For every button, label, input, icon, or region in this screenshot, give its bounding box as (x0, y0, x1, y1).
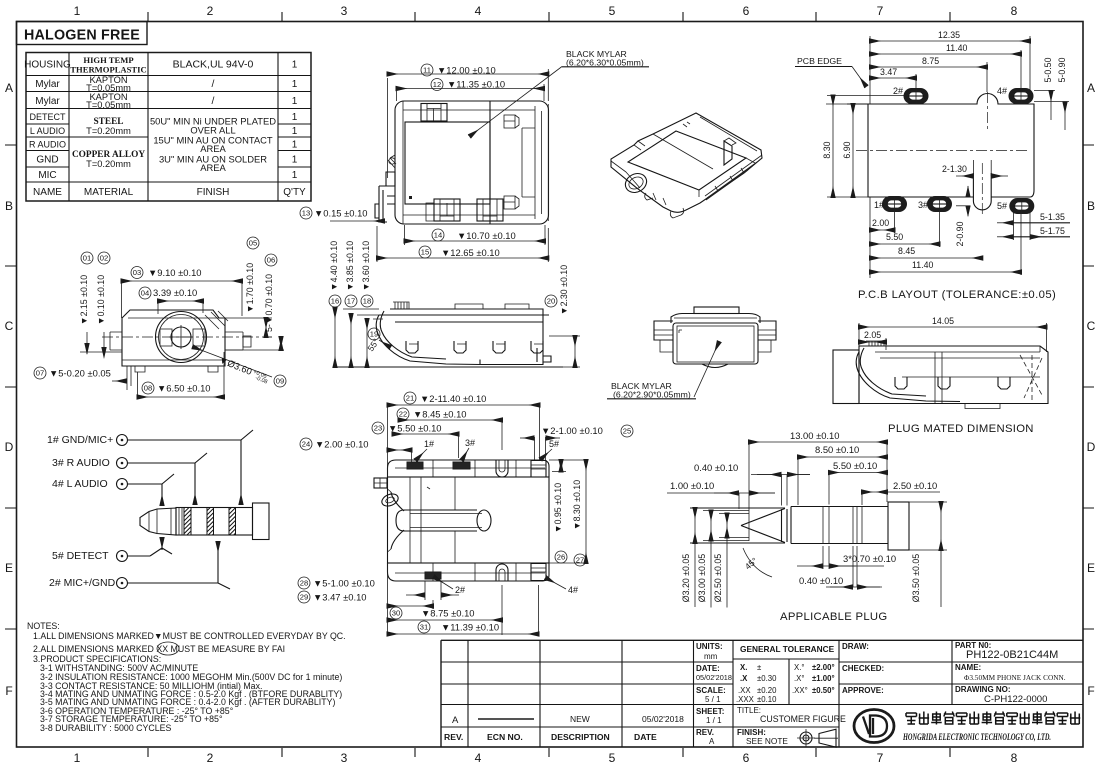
svg-text:5-0.90: 5-0.90 (1057, 57, 1067, 82)
svg-text:5 / 1: 5 / 1 (705, 695, 721, 704)
svg-text:28: 28 (300, 579, 308, 588)
svg-text:C: C (5, 319, 14, 333)
svg-text:▼8.45 ±0.10: ▼8.45 ±0.10 (413, 409, 467, 420)
svg-text:SHEET:: SHEET: (696, 707, 724, 716)
svg-text:NAME:: NAME: (955, 663, 981, 672)
svg-text:Ø3.20 ±0.05: Ø3.20 ±0.05 (681, 554, 691, 602)
svg-text:R AUDIO: R AUDIO (29, 140, 66, 150)
svg-text:SCALE:: SCALE: (696, 686, 726, 695)
svg-text:13: 13 (302, 209, 310, 218)
svg-text:2: 2 (207, 4, 214, 18)
svg-text:4: 4 (475, 751, 482, 765)
svg-text:3#: 3# (918, 200, 928, 210)
svg-text:NEW: NEW (570, 714, 590, 724)
svg-text:/: / (212, 95, 215, 107)
svg-text:24: 24 (302, 440, 310, 449)
svg-text:±0.50°: ±0.50° (812, 686, 835, 695)
svg-text:DESCRIPTION: DESCRIPTION (551, 732, 610, 742)
svg-text:3#: 3# (465, 438, 475, 448)
svg-text:B: B (1087, 199, 1095, 213)
svg-text:11.40: 11.40 (912, 260, 933, 270)
svg-text:FINISH: FINISH (197, 187, 230, 198)
svg-text:▼4.40 ±0.10: ▼4.40 ±0.10 (329, 241, 339, 291)
svg-text:UNITS:: UNITS: (696, 642, 723, 651)
svg-text:2.05: 2.05 (864, 330, 881, 340)
svg-text:5#: 5# (549, 439, 559, 449)
svg-text:8: 8 (1011, 751, 1018, 765)
svg-text:NOTES:: NOTES: (27, 621, 60, 631)
svg-text:12: 12 (433, 80, 441, 89)
svg-text:11.40: 11.40 (946, 43, 967, 53)
svg-text:HIGH TEMP: HIGH TEMP (83, 55, 133, 65)
svg-text:5-1.35: 5-1.35 (1040, 212, 1065, 222)
svg-text:07: 07 (36, 369, 44, 378)
svg-text:D: D (5, 440, 14, 454)
svg-text:T=0.20mm: T=0.20mm (86, 126, 131, 136)
svg-text:21: 21 (406, 394, 414, 403)
svg-text:01: 01 (83, 254, 91, 263)
svg-text:0.40 ±0.10: 0.40 ±0.10 (799, 575, 843, 586)
svg-text:A: A (709, 737, 715, 746)
svg-text:Φ3.50MM PHONE JACK CONN.: Φ3.50MM PHONE JACK CONN. (964, 673, 1066, 682)
svg-text:▼11.39 ±0.10: ▼11.39 ±0.10 (441, 622, 499, 633)
svg-text:03: 03 (133, 268, 141, 277)
svg-text:▼8.75 ±0.10: ▼8.75 ±0.10 (421, 608, 475, 619)
svg-text:1: 1 (292, 170, 298, 181)
svg-text:5-1.75: 5-1.75 (1040, 226, 1065, 236)
svg-text:A: A (452, 715, 459, 726)
svg-text:TITLE:: TITLE: (737, 706, 761, 715)
svg-text:DATE: DATE (634, 732, 657, 742)
svg-text:1: 1 (292, 155, 298, 166)
svg-text:±0.30: ±0.30 (757, 674, 777, 683)
svg-text:▼5-1.00 ±0.10: ▼5-1.00 ±0.10 (313, 578, 375, 589)
svg-text:.XX: .XX (738, 686, 751, 695)
svg-text:▼9.10 ±0.10: ▼9.10 ±0.10 (148, 267, 202, 278)
svg-text:▼2-11.40 ±0.10: ▼2-11.40 ±0.10 (420, 393, 486, 404)
svg-text:F: F (1087, 684, 1094, 698)
svg-text:E: E (5, 561, 13, 575)
svg-text:(6.20*6.30*0.05mm): (6.20*6.30*0.05mm) (566, 58, 644, 68)
svg-text:4# L AUDIO: 4# L AUDIO (52, 478, 108, 490)
svg-text:CUSTOMER FIGURE: CUSTOMER FIGURE (760, 714, 846, 724)
svg-text:A: A (5, 81, 13, 95)
svg-text:T=0.05mm: T=0.05mm (86, 100, 131, 110)
svg-text:1#: 1# (424, 439, 434, 449)
svg-text:1: 1 (292, 96, 298, 107)
svg-text:30: 30 (392, 609, 400, 618)
svg-text:09: 09 (276, 377, 284, 386)
svg-text:DRAWING NO:: DRAWING NO: (955, 685, 1011, 694)
svg-text:PH122-0B21C44M: PH122-0B21C44M (966, 649, 1058, 661)
svg-text:PCB EDGE: PCB EDGE (797, 56, 842, 66)
svg-text:05: 05 (249, 239, 257, 248)
svg-text:04: 04 (141, 289, 149, 298)
svg-text:20: 20 (547, 297, 555, 306)
svg-text:3.47: 3.47 (880, 67, 897, 77)
svg-text:PLUG MATED DIMENSION: PLUG MATED DIMENSION (888, 423, 1034, 435)
svg-text:5: 5 (609, 4, 616, 18)
svg-text:APPROVE:: APPROVE: (842, 686, 884, 695)
svg-text:1# GND/MIC+: 1# GND/MIC+ (47, 434, 113, 446)
svg-text:REV.: REV. (696, 728, 714, 737)
svg-text:19: 19 (370, 330, 378, 339)
svg-text:3*0.70 ±0.10: 3*0.70 ±0.10 (843, 553, 896, 564)
svg-text:L AUDIO: L AUDIO (30, 126, 65, 136)
svg-text:GND: GND (36, 155, 58, 166)
svg-text:6: 6 (743, 751, 750, 765)
svg-text:.X: .X (740, 674, 748, 683)
svg-text:7: 7 (877, 4, 884, 18)
svg-text:1: 1 (74, 751, 81, 765)
svg-text:8.75: 8.75 (922, 56, 939, 66)
svg-text:.X°: .X° (794, 674, 805, 683)
svg-text:05/02'2018: 05/02'2018 (642, 714, 684, 724)
svg-text:Ø2.50 ±0.05: Ø2.50 ±0.05 (713, 554, 723, 602)
svg-text:X.: X. (740, 663, 747, 672)
svg-text:SEE NOTE: SEE NOTE (746, 736, 788, 746)
svg-text:14: 14 (434, 231, 442, 240)
svg-text:2.00: 2.00 (872, 218, 889, 228)
svg-text:Ø3.50 ±0.05: Ø3.50 ±0.05 (911, 554, 921, 602)
svg-text:F: F (5, 684, 12, 698)
svg-text:DATE:: DATE: (696, 664, 720, 673)
svg-text:▼5.50 ±0.10: ▼5.50 ±0.10 (388, 423, 442, 434)
svg-text:BLACK,UL 94V-0: BLACK,UL 94V-0 (173, 59, 254, 71)
svg-text:D: D (1087, 440, 1096, 454)
svg-text:1: 1 (292, 60, 298, 71)
svg-text:1: 1 (292, 126, 298, 137)
svg-text:C: C (1087, 319, 1096, 333)
svg-text:THERMOPLASTIC: THERMOPLASTIC (70, 65, 146, 75)
svg-text:31: 31 (420, 623, 428, 632)
svg-text:8.45: 8.45 (898, 246, 915, 256)
svg-text:▼0.95 ±0.10: ▼0.95 ±0.10 (553, 483, 563, 533)
svg-text:(6.20*2.90*0.05mm): (6.20*2.90*0.05mm) (613, 390, 691, 400)
svg-text:12.35: 12.35 (938, 30, 960, 40)
svg-text:REV.: REV. (444, 732, 463, 742)
svg-text:▼5-0.20 ±0.05: ▼5-0.20 ±0.05 (49, 368, 111, 379)
svg-text:8: 8 (1011, 4, 1018, 18)
svg-text:1: 1 (292, 112, 298, 123)
svg-text:ECN NO.: ECN NO. (487, 732, 523, 742)
svg-text:8.30: 8.30 (822, 141, 832, 158)
svg-text:2#: 2# (455, 585, 465, 595)
svg-text:7: 7 (877, 751, 884, 765)
svg-text:▼11.35 ±0.10: ▼11.35 ±0.10 (447, 79, 505, 90)
svg-text:1: 1 (292, 79, 298, 90)
svg-text:29: 29 (300, 593, 308, 602)
svg-text:2.50 ±0.10: 2.50 ±0.10 (893, 480, 937, 491)
svg-text:Mylar: Mylar (35, 96, 60, 107)
svg-text:DETECT: DETECT (30, 112, 67, 122)
svg-text:HOUSING: HOUSING (24, 60, 71, 71)
svg-text:2# MIC+/GND: 2# MIC+/GND (49, 577, 116, 589)
svg-text:2-0.90: 2-0.90 (955, 221, 965, 246)
svg-text:13.00 ±0.10: 13.00 ±0.10 (790, 430, 839, 441)
svg-text:▼2.30 ±0.10: ▼2.30 ±0.10 (559, 265, 569, 315)
svg-text:1.ALL DIMENSIONS MARKED▼MUST B: 1.ALL DIMENSIONS MARKED▼MUST BE CONTROLL… (33, 631, 346, 641)
svg-text:4: 4 (475, 4, 482, 18)
svg-text:25: 25 (623, 427, 631, 436)
svg-text:▼8.30 ±0.10: ▼8.30 ±0.10 (572, 480, 582, 530)
svg-text:3# R AUDIO: 3# R AUDIO (52, 457, 110, 469)
svg-text:.XX°: .XX° (792, 686, 808, 695)
svg-text:±1.00°: ±1.00° (812, 674, 835, 683)
svg-text:6: 6 (743, 4, 750, 18)
svg-text:P.C.B LAYOUT (TOLERANCE:±0.05: P.C.B LAYOUT (TOLERANCE:±0.05) (858, 289, 1056, 301)
svg-text:±: ± (757, 663, 762, 672)
svg-text:AREA: AREA (200, 143, 226, 154)
svg-text:14.05: 14.05 (932, 316, 954, 326)
svg-text:▼0.15 ±0.10: ▼0.15 ±0.10 (314, 208, 368, 219)
svg-text:HALOGEN FREE: HALOGEN FREE (24, 28, 140, 44)
svg-text:4#: 4# (997, 86, 1007, 96)
svg-text:5.50: 5.50 (886, 232, 903, 242)
svg-text:5-▼0.70 ±0.10: 5-▼0.70 ±0.10 (264, 274, 274, 332)
svg-text:6.90: 6.90 (842, 141, 852, 158)
svg-text:CHECKED:: CHECKED: (842, 664, 884, 673)
svg-text:T=0.20mm: T=0.20mm (86, 159, 131, 169)
svg-text:5# DETECT: 5# DETECT (52, 550, 109, 562)
svg-text:2: 2 (207, 751, 214, 765)
svg-text:▼0.10 ±0.10: ▼0.10 ±0.10 (96, 275, 106, 325)
svg-text:▼1.70 ±0.10: ▼1.70 ±0.10 (245, 263, 255, 313)
svg-text:X.°: X.° (794, 663, 805, 672)
svg-text:B: B (5, 199, 13, 213)
svg-text:±0.10: ±0.10 (757, 695, 777, 704)
svg-text:05/02'2018: 05/02'2018 (696, 673, 732, 682)
svg-text:Ø3.00 ±0.05: Ø3.00 ±0.05 (697, 554, 707, 602)
svg-text:0.40 ±0.10: 0.40 ±0.10 (694, 462, 738, 473)
svg-text:APPLICABLE PLUG: APPLICABLE PLUG (780, 611, 887, 623)
svg-text:3: 3 (341, 751, 348, 765)
svg-text:Mylar: Mylar (35, 79, 60, 90)
svg-text:AREA: AREA (200, 162, 226, 173)
svg-text:▼12.65 ±0.10: ▼12.65 ±0.10 (441, 247, 500, 258)
svg-text:C-PH122-0000: C-PH122-0000 (984, 694, 1047, 705)
svg-text:16: 16 (331, 297, 339, 306)
svg-text:22: 22 (399, 410, 407, 419)
svg-text:8.50 ±0.10: 8.50 ±0.10 (815, 444, 859, 455)
svg-text:1 / 1: 1 / 1 (706, 716, 722, 725)
svg-text:mm: mm (704, 652, 718, 661)
svg-text:23: 23 (374, 424, 382, 433)
svg-text:▼2-1.00 ±0.10: ▼2-1.00 ±0.10 (541, 425, 603, 436)
svg-text:E: E (1087, 561, 1095, 575)
svg-text:1.00 ±0.10: 1.00 ±0.10 (670, 480, 714, 491)
svg-text:Q'TY: Q'TY (283, 187, 306, 198)
svg-text:1#: 1# (874, 200, 884, 210)
svg-text:26: 26 (557, 553, 565, 562)
svg-text:▼2.00 ±0.10: ▼2.00 ±0.10 (315, 439, 369, 450)
svg-text:▼3.85 ±0.10: ▼3.85 ±0.10 (345, 241, 355, 291)
svg-text:±0.20: ±0.20 (757, 686, 777, 695)
svg-text:DRAW:: DRAW: (842, 642, 869, 651)
svg-text:NAME: NAME (33, 187, 62, 198)
svg-text:.XXX: .XXX (736, 695, 755, 704)
svg-text:17: 17 (347, 297, 355, 306)
svg-text:2-1.30: 2-1.30 (942, 164, 967, 174)
svg-text:15: 15 (421, 248, 429, 257)
svg-text:02: 02 (100, 254, 108, 263)
svg-text:±2.00°: ±2.00° (812, 663, 835, 672)
svg-text:2#: 2# (893, 86, 903, 96)
svg-text:5#: 5# (997, 201, 1007, 211)
svg-text:11: 11 (423, 66, 431, 75)
svg-text:▼10.70 ±0.10: ▼10.70 ±0.10 (457, 230, 516, 241)
svg-text:▼6.50 ±0.10: ▼6.50 ±0.10 (157, 383, 211, 394)
svg-text:▼3.47 ±0.10: ▼3.47 ±0.10 (313, 592, 367, 603)
svg-text:3: 3 (341, 4, 348, 18)
svg-text:1: 1 (74, 4, 81, 18)
svg-text:08: 08 (144, 384, 152, 393)
svg-text:/: / (212, 78, 215, 90)
svg-text:1: 1 (292, 140, 298, 151)
svg-text:3-8 DURABILITY : 5000 CYCLES: 3-8 DURABILITY : 5000 CYCLES (40, 723, 171, 733)
svg-text:5.50 ±0.10: 5.50 ±0.10 (833, 460, 877, 471)
svg-text:MIC: MIC (38, 170, 56, 181)
svg-text:HONGRIDA ELECTRONIC TECHNOLOGY: HONGRIDA ELECTRONIC TECHNOLOGY CO, LTD. (902, 732, 1051, 742)
svg-text:18: 18 (363, 297, 371, 306)
svg-text:GENERAL TOLERANCE: GENERAL TOLERANCE (740, 644, 835, 654)
svg-text:4#: 4# (568, 585, 578, 595)
svg-text:MATERIAL: MATERIAL (84, 187, 134, 198)
svg-text:3.39 ±0.10: 3.39 ±0.10 (153, 287, 197, 298)
svg-text:5: 5 (609, 751, 616, 765)
svg-text:06: 06 (267, 256, 275, 265)
svg-text:▼12.00 ±0.10: ▼12.00 ±0.10 (437, 65, 496, 76)
svg-text:A: A (1087, 81, 1095, 95)
svg-text:5-0.50: 5-0.50 (1043, 57, 1053, 82)
svg-text:▼3.60 ±0.10: ▼3.60 ±0.10 (361, 241, 371, 291)
svg-text:▼2.15 ±0.10: ▼2.15 ±0.10 (79, 275, 89, 325)
